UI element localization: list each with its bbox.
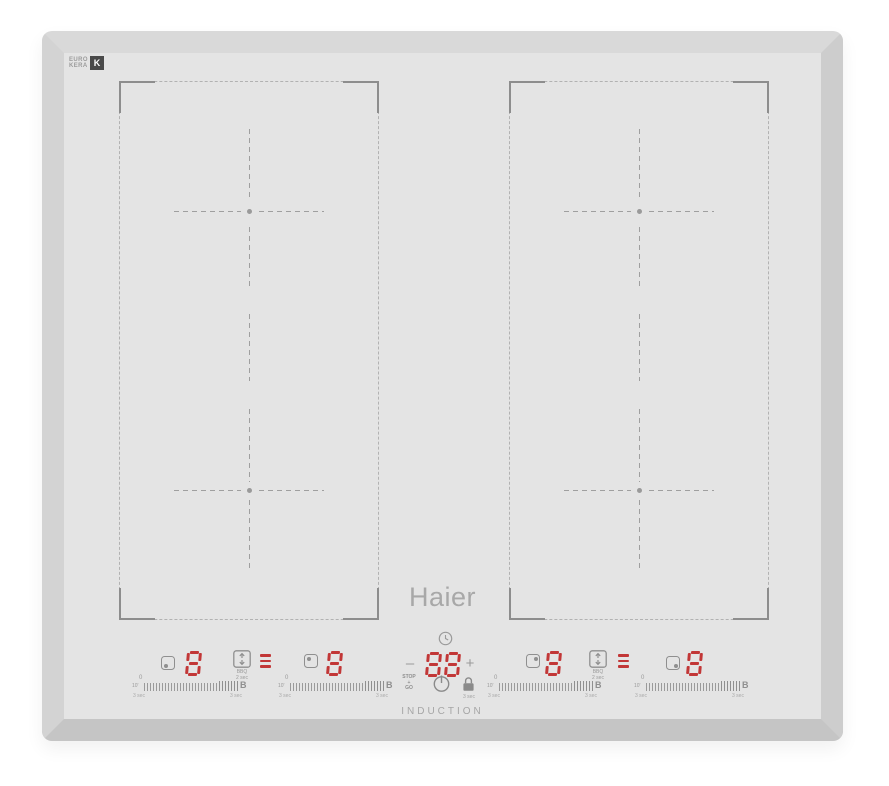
eurokera-text: EURO KERA (69, 57, 88, 70)
power-slider-right-front[interactable]: 0 10' B 3 sec 3 sec (634, 675, 752, 697)
burner-cross-line (249, 227, 250, 286)
burner-cross-line (259, 211, 324, 212)
burner-cross-line (249, 129, 250, 197)
power-slider-left-front[interactable]: 0 10' B 3 sec 3 sec (132, 675, 250, 697)
eurokera-logo: EURO KERA K (69, 56, 104, 70)
zone-corner-mark (343, 81, 379, 113)
burner-center-dot (247, 209, 252, 214)
burner-cross-line (249, 500, 250, 569)
burner-cross-line (174, 490, 241, 491)
induction-label: INDUCTION (64, 706, 821, 717)
slider-hold-hint: 3 sec (133, 693, 145, 699)
zone-position-dot (534, 657, 538, 661)
stop-and-go-button[interactable]: STOP + GO (395, 675, 423, 692)
burner-cross-line (649, 211, 714, 212)
keep-warm-button-left[interactable] (260, 654, 271, 668)
burner-cross-line (639, 227, 640, 286)
power-button[interactable] (432, 674, 451, 693)
slider-ticks[interactable] (499, 683, 573, 691)
keep-warm-button-right[interactable] (618, 654, 629, 668)
burner-center-dot (247, 488, 252, 493)
haier-logo: Haier (64, 582, 821, 613)
power-icon (432, 674, 451, 693)
zone-position-dot (164, 664, 168, 668)
bridge-zone-button-right[interactable] (589, 650, 607, 668)
burner-cross-line (649, 490, 714, 491)
zone-select-button-right-front[interactable] (666, 656, 680, 670)
slider-left-small-label: 10' (278, 683, 285, 689)
burner-cross-line (639, 409, 640, 482)
timer-minus-button[interactable]: – (402, 653, 418, 675)
zone-corner-mark (509, 81, 545, 113)
zone-corner-mark (733, 81, 769, 113)
slider-boost-label: B (742, 680, 749, 690)
cooktop-body: EURO KERA K (42, 31, 843, 741)
slider-boost-label: B (595, 680, 602, 690)
slider-ticks-high[interactable] (574, 681, 593, 691)
timer-plus-button[interactable]: + (462, 653, 478, 675)
cooking-zone-right (509, 81, 769, 620)
burner-cross-line (564, 211, 631, 212)
burner-cross-line (639, 129, 640, 197)
power-display-left-front: 8 (185, 651, 202, 676)
slider-ticks[interactable] (646, 683, 720, 691)
slider-hold-hint: 3 sec (635, 693, 647, 699)
power-display-right-rear: 8 (545, 651, 562, 676)
bridge-zone-button-left[interactable] (233, 650, 251, 668)
zone-position-dot (674, 664, 678, 668)
burner-cross-line (639, 314, 640, 381)
slider-hold-hint: 3 sec (585, 693, 597, 699)
stop-go-line3: GO (395, 686, 423, 692)
slider-min-label: 0 (641, 675, 644, 681)
burner-cross-line (564, 490, 631, 491)
bridge-arrows-icon (233, 650, 251, 668)
burner-center-dot (637, 209, 642, 214)
zone-corner-mark (119, 81, 155, 113)
slider-left-small-label: 10' (132, 683, 139, 689)
burner-cross-line (249, 409, 250, 482)
zone-select-button-left-rear[interactable] (304, 654, 318, 668)
slider-hold-hint: 3 sec (279, 693, 291, 699)
burner-center-dot (637, 488, 642, 493)
power-slider-left-rear[interactable]: 0 10' B 3 sec 3 sec (278, 675, 396, 697)
slider-min-label: 0 (139, 675, 142, 681)
lock-button[interactable] (462, 676, 475, 692)
zone-select-button-left-front[interactable] (161, 656, 175, 670)
lock-icon (462, 676, 475, 692)
zone-position-dot (307, 657, 311, 661)
slider-ticks-high[interactable] (219, 681, 238, 691)
burner-cross-line (174, 211, 241, 212)
slider-hold-hint: 3 sec (732, 693, 744, 699)
slider-left-small-label: 10' (634, 683, 641, 689)
slider-ticks-high[interactable] (365, 681, 384, 691)
slider-min-label: 0 (285, 675, 288, 681)
slider-hold-hint: 3 sec (376, 693, 388, 699)
burner-cross-line (249, 314, 250, 381)
zone-select-button-right-rear[interactable] (526, 654, 540, 668)
power-display-left-rear: 8 (326, 651, 343, 676)
burner-cross-line (259, 490, 324, 491)
eurokera-k-mark: K (90, 56, 104, 70)
lock-hold-hint: 3 sec (456, 694, 482, 700)
slider-hold-hint: 3 sec (488, 693, 500, 699)
eurokera-line2: KERA (69, 63, 88, 70)
burner-cross-line (639, 500, 640, 569)
timer-clock-icon (438, 631, 453, 646)
power-display-right-front: 8 (686, 651, 703, 676)
slider-min-label: 0 (494, 675, 497, 681)
product-photo: EURO KERA K (0, 0, 889, 786)
bridge-arrows-icon (589, 650, 607, 668)
slider-ticks[interactable] (290, 683, 364, 691)
slider-left-small-label: 10' (487, 683, 494, 689)
slider-ticks[interactable] (144, 683, 218, 691)
slider-ticks-high[interactable] (721, 681, 740, 691)
cooking-zone-left (119, 81, 379, 620)
slider-boost-label: B (386, 680, 393, 690)
power-slider-right-rear[interactable]: 0 10' B 3 sec 3 sec (487, 675, 605, 697)
slider-hold-hint: 3 sec (230, 693, 242, 699)
slider-boost-label: B (240, 680, 247, 690)
